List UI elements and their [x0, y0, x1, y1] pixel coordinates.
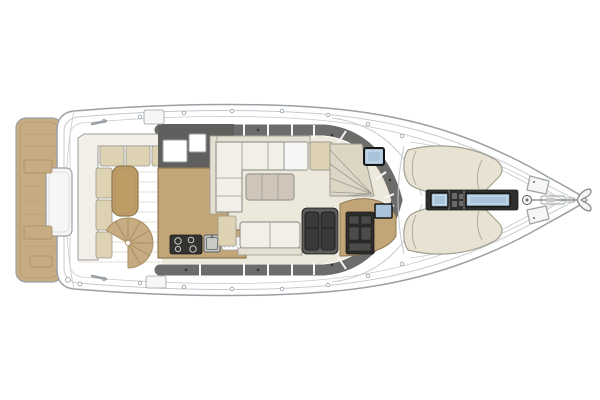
locker-latch — [533, 217, 535, 219]
windlass-gypsy — [526, 199, 529, 202]
stanchion — [366, 122, 370, 126]
console-instrument — [361, 227, 371, 240]
cockpit-cushion — [96, 232, 112, 258]
helm-seat — [305, 212, 319, 250]
walkway-fitting — [459, 201, 463, 206]
fastener-dot — [331, 134, 333, 136]
platform-hatch — [24, 226, 52, 239]
galley-appliance — [163, 140, 187, 162]
storage-cabinet — [284, 142, 308, 170]
fastener-dot — [185, 269, 187, 271]
fastener-dot — [257, 269, 259, 271]
faucet — [211, 236, 214, 239]
console-instrument — [349, 227, 359, 240]
stanchion — [230, 287, 234, 291]
cockpit-table — [112, 166, 138, 216]
stanchion — [182, 285, 186, 289]
platform-hatch — [24, 160, 52, 173]
cockpit-cushion — [100, 146, 124, 166]
cockpit-cushion — [126, 146, 150, 166]
cockpit-table-group — [112, 166, 138, 216]
stern-fitting — [66, 278, 71, 283]
walkway-fitting — [459, 194, 463, 199]
fastener-dot — [331, 264, 333, 266]
galley-appliance — [189, 134, 206, 152]
fastener-dot — [389, 179, 391, 181]
console-instrument — [361, 216, 371, 224]
salon-bench-backrest — [238, 248, 302, 255]
side-deck-step — [144, 110, 164, 124]
locker-latch — [533, 181, 535, 183]
storage-cabinet — [310, 142, 332, 170]
console-instrument — [349, 243, 371, 251]
anchor-shank — [546, 198, 555, 203]
side-deck-step — [146, 276, 166, 288]
walkway-hatch-long — [466, 194, 510, 207]
stair-center-post — [125, 240, 130, 245]
cockpit-cushion — [96, 168, 112, 198]
walkway-fitting — [452, 193, 457, 199]
stanchion — [400, 262, 404, 266]
platform-hatch — [30, 256, 52, 267]
stanchion — [326, 113, 330, 117]
stove — [170, 235, 202, 254]
stanchion — [280, 109, 284, 113]
stanchion — [326, 283, 330, 287]
stanchion — [138, 115, 142, 119]
stanchion — [366, 274, 370, 278]
yacht-floorplan — [0, 0, 600, 400]
console-instrument — [349, 216, 359, 224]
helm-screen-hatch — [375, 204, 392, 218]
corner-cabinet — [218, 216, 236, 246]
stanchion — [182, 111, 186, 115]
fastener-dot — [257, 129, 259, 131]
salon-table — [246, 174, 294, 200]
stanchion — [400, 134, 404, 138]
helm-seat — [321, 212, 335, 250]
stanchion — [138, 281, 142, 285]
walkway-fitting — [452, 201, 457, 207]
stern-fitting — [78, 282, 82, 286]
stanchion — [280, 287, 284, 291]
stanchion — [230, 109, 234, 113]
